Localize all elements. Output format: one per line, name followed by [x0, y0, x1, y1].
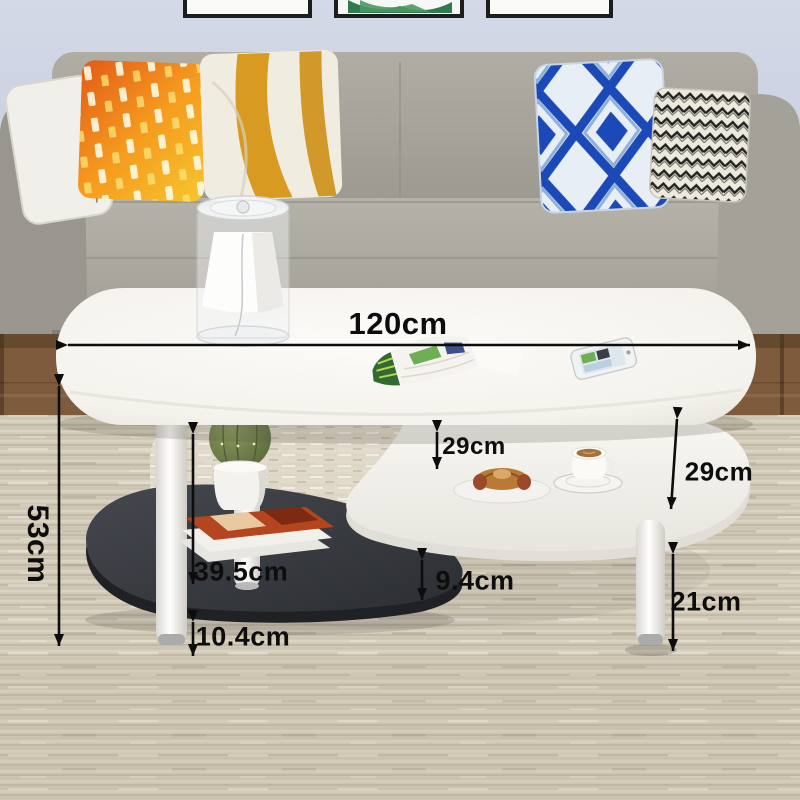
- product-photo-coffee-table: 120cm 53cm 29cm 29cm 39.5cm 10.4cm 9.4cm…: [0, 0, 800, 800]
- dim-label-table-width: 120cm: [348, 306, 447, 342]
- pillow-orange: [78, 60, 209, 202]
- scene-graphic: [0, 0, 800, 800]
- dim-label-left-leg-lower: 10.4cm: [196, 622, 291, 653]
- dim-label-right-clearance: 29cm: [685, 457, 754, 488]
- dim-label-right-leg: 21cm: [670, 587, 741, 618]
- table-lamp: [197, 196, 289, 347]
- dim-label-shelf-edge: 9.4cm: [435, 566, 514, 597]
- picture-frame-left: [183, 0, 312, 18]
- dim-label-left-leg-upper: 39.5cm: [194, 557, 289, 588]
- dim-label-table-height: 53cm: [20, 505, 54, 584]
- pillow-stripe: [199, 50, 342, 202]
- pillow-chevron: [649, 88, 751, 203]
- picture-frame-right: [486, 0, 613, 18]
- picture-frame-center: [334, 0, 464, 18]
- dim-label-mid-clearance: 29cm: [442, 433, 505, 461]
